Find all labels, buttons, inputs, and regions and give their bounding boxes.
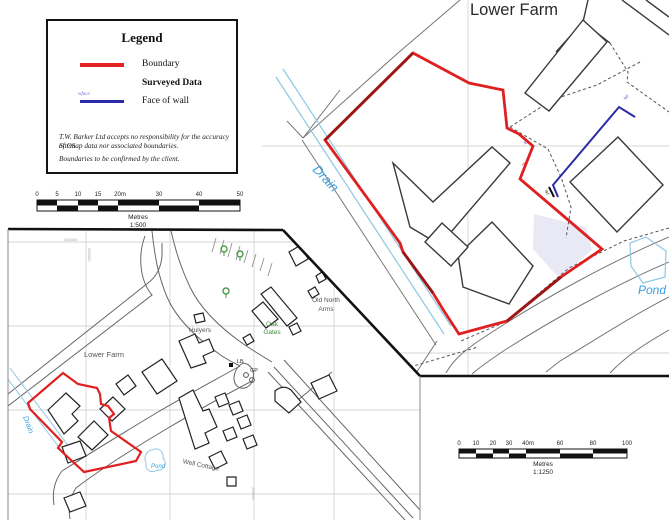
- roads: [8, 231, 420, 520]
- pond-outline: [630, 237, 666, 283]
- building-outline: [227, 477, 236, 486]
- tick-label: 50: [237, 192, 244, 198]
- road-line: [303, 0, 460, 138]
- grid-coordinate-label: 258400: [87, 248, 92, 262]
- tick-label: 40: [196, 192, 203, 198]
- scalebar-segments: [459, 449, 627, 458]
- building-outline: [142, 359, 177, 394]
- scalebar-segment: [509, 454, 526, 459]
- tick-label: 0: [35, 192, 39, 198]
- road-curve: [53, 471, 62, 505]
- scalebar-segment: [526, 449, 560, 454]
- hatch-stroke: [260, 258, 264, 271]
- building-outline: [100, 397, 125, 421]
- drain-label: Drain: [21, 415, 36, 435]
- wall-annotation: wf: [543, 189, 550, 196]
- road-curve: [546, 297, 669, 372]
- building-outline: [48, 393, 80, 434]
- building-outline: [243, 435, 257, 449]
- boundary-dark-segment: [403, 252, 433, 293]
- hatch-stroke: [212, 238, 216, 252]
- letter-box-marker: [229, 363, 233, 367]
- scalebar-segment: [560, 454, 593, 459]
- scalebar-segment: [159, 206, 199, 212]
- lower-farm-label: Lower Farm: [84, 350, 124, 359]
- building-outline: [215, 393, 229, 407]
- grid-coordinate-label: 258400: [64, 237, 78, 242]
- building-outline: [622, 0, 669, 35]
- building-outline: [646, 0, 669, 17]
- tree-icon: [223, 288, 229, 294]
- road-curve: [610, 330, 669, 373]
- building-outline: [275, 387, 301, 413]
- letter-box-label: LB: [237, 359, 244, 365]
- legend-boundary-label: Boundary: [142, 59, 179, 69]
- road-line: [284, 360, 420, 510]
- road-line: [287, 121, 303, 138]
- road-line: [8, 243, 162, 394]
- hatch-stroke: [228, 243, 232, 257]
- scalebar-ratio-label: 1:1250: [533, 469, 553, 476]
- diagonal-border: [283, 230, 420, 376]
- building-outline: [179, 334, 214, 368]
- scalebar-segment: [459, 449, 476, 454]
- scalebar-segment: [493, 449, 509, 454]
- building-outline: [243, 334, 254, 345]
- scalebar-segment: [98, 206, 118, 212]
- tick-label: 15: [95, 192, 102, 198]
- tick-label: 40m: [522, 441, 534, 447]
- tick-label: 100: [622, 441, 633, 447]
- scalebar-segment: [476, 454, 493, 459]
- road-line: [274, 367, 413, 518]
- building-outline: [289, 323, 301, 335]
- tick-label: 80: [590, 441, 597, 447]
- wall-face-annotation: wface: [78, 92, 90, 97]
- tick-label: 20: [490, 441, 497, 447]
- tree-icon: [221, 246, 227, 252]
- wall-annotation: wf: [623, 93, 631, 101]
- drain-label: Drain: [310, 162, 342, 195]
- road-line: [416, 341, 437, 373]
- oak-gates-label: Oak: [266, 321, 279, 328]
- disclaimer-line: Boundaries to be confirmed by the client…: [59, 154, 233, 163]
- building-outline: [229, 401, 243, 415]
- scalebar-segment: [57, 206, 78, 212]
- boundary-dark-segment: [325, 53, 413, 140]
- legend-face-of-wall-label: Face of wall: [142, 96, 189, 106]
- legend-box: Legend Boundary Surveyed Data wface Face…: [46, 19, 238, 174]
- scalebar-unit-label: Metres: [128, 214, 149, 221]
- building-outline: [237, 415, 251, 429]
- tick-label: 30: [506, 441, 513, 447]
- hatch-stroke: [244, 250, 248, 263]
- hatch-stroke: [268, 263, 272, 276]
- large-map: Lower Farm Drain Pond wf wf T w: [262, 0, 669, 376]
- legend-title: Legend: [48, 30, 236, 46]
- tick-label: 30: [156, 192, 163, 198]
- disclaimer-line: Sitemap data nor associated boundaries.: [59, 141, 233, 150]
- scalebar-ratio-label: 1:500: [130, 222, 147, 229]
- scalebar-segment: [199, 200, 240, 206]
- tick-label: 5: [55, 192, 59, 198]
- tick-label: 10: [473, 441, 480, 447]
- building-outline: [223, 427, 237, 441]
- old-north-arms-label: Old North: [312, 297, 340, 304]
- scalebar-1250: 0 10 20 30 40m 60 80 100 Metres 1:1250: [457, 441, 632, 476]
- overview-map-top-border: [8, 229, 283, 230]
- legend-surveyed-data-label: Surveyed Data: [142, 78, 202, 88]
- fence-dashed: [610, 43, 669, 112]
- building-outline: [64, 492, 86, 512]
- scalebar-tick-labels: 0 5 10 15 20m 30 40 50: [35, 192, 244, 198]
- scalebar-unit-label: Metres: [533, 461, 554, 468]
- pond-label: Pond: [151, 464, 166, 470]
- building-outline: [179, 390, 217, 449]
- building-outline: [525, 20, 607, 111]
- survey-plan-sheet: Lower Farm Drain Pond wf wf T w 258400 2…: [0, 0, 669, 520]
- grid-coordinate-label: 258300: [251, 487, 256, 501]
- building-outline: [458, 222, 533, 304]
- trees: [221, 246, 243, 298]
- building-outline: [311, 375, 337, 399]
- hulyers-label: Hulyers: [189, 327, 212, 334]
- highlighted-plot-area: [533, 214, 592, 278]
- tick-label: 0: [457, 441, 461, 447]
- tick-label: 20m: [114, 192, 126, 198]
- boundary-swatch-red-line: [80, 63, 124, 67]
- pond-label: Pond: [638, 283, 666, 297]
- overview-map: 258400 258400 258300: [4, 231, 420, 520]
- scalebar-500: 0 5 10 15 20m 30 40 50 Metres 1:500: [35, 192, 244, 229]
- buildings: [48, 245, 337, 512]
- tick-label: 60: [557, 441, 564, 447]
- scalebar-segment: [78, 200, 98, 206]
- scalebar-segment: [593, 449, 627, 454]
- tick-label: 10: [75, 192, 82, 198]
- large-map-title: Lower Farm: [470, 1, 558, 19]
- boundary-annotation: w: [521, 140, 528, 147]
- face-of-wall-swatch-blue-line: [80, 100, 124, 103]
- building-outline: [116, 375, 136, 395]
- old-north-arms-label: Arms: [318, 306, 334, 313]
- oak-gates-label: Gates: [263, 329, 281, 336]
- post-marker: [244, 373, 249, 378]
- building-outline: [62, 441, 86, 463]
- grid-lines: [8, 231, 420, 520]
- building-outline: [194, 313, 205, 323]
- scalebar-segments: [37, 200, 240, 211]
- guide-post-label: GP: [250, 368, 258, 374]
- scalebar-segment: [118, 200, 159, 206]
- scalebar-segment: [37, 200, 57, 206]
- scalebar-tick-labels: 0 10 20 30 40m 60 80 100: [457, 441, 632, 447]
- building-outline: [570, 137, 663, 232]
